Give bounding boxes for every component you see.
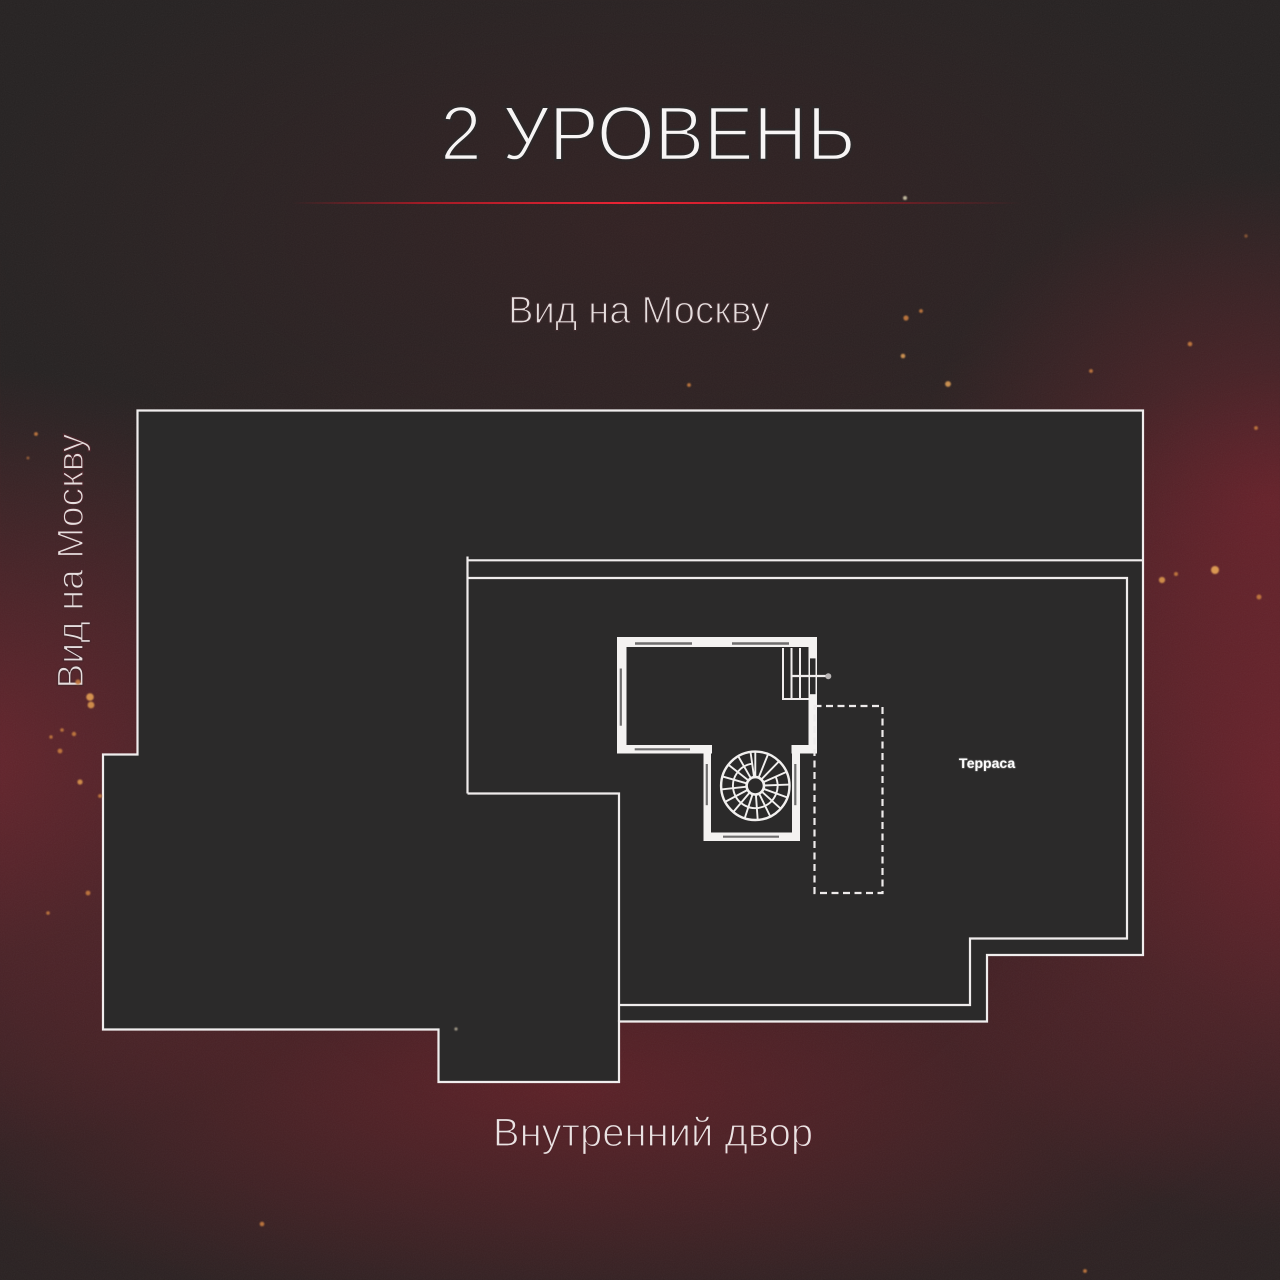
svg-text:Терраса: Терраса bbox=[959, 755, 1015, 771]
